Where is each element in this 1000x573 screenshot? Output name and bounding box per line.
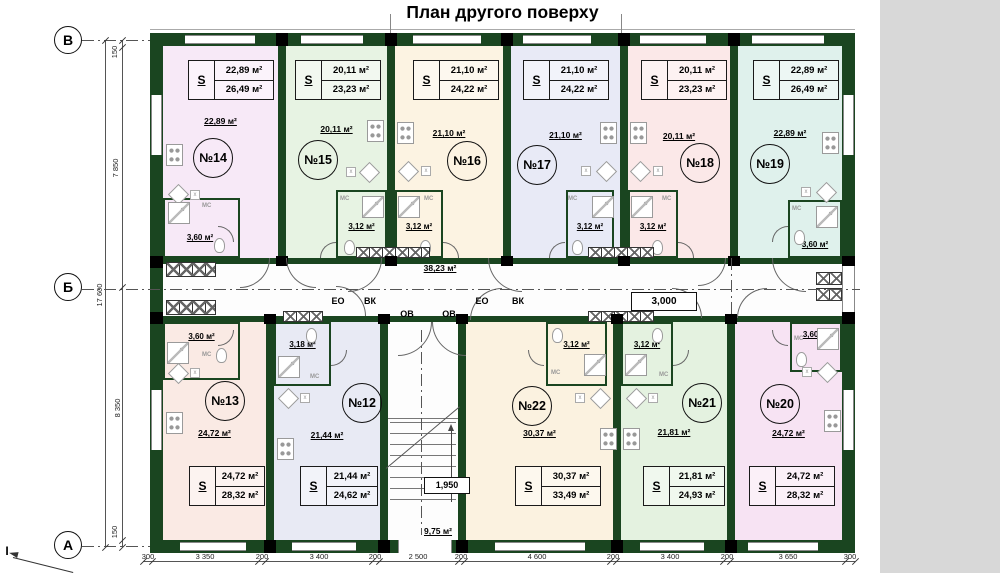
appliance-x-icon: х	[190, 368, 200, 378]
page-title: План другого поверху	[150, 2, 855, 23]
toilet-icon	[216, 348, 227, 363]
total-area-value: 24,22 м²	[550, 81, 608, 100]
stove-icon	[600, 122, 617, 144]
apartment-area-table: S24,72 м²28,32 м²	[749, 466, 835, 506]
stair-axis-line	[421, 330, 422, 535]
toilet-icon	[794, 230, 805, 245]
washing-machine-label: МС	[551, 370, 565, 377]
dim-line-left-inner	[122, 40, 123, 547]
apartment-area-table: S24,72 м²28,32 м²	[189, 466, 265, 506]
apartment-area-table: S20,11 м²23,23 м²	[295, 60, 381, 100]
column-block	[378, 314, 390, 324]
window	[151, 390, 162, 450]
table-values: 21,10 м²24,22 м²	[440, 61, 498, 99]
dim-label-bottom: 200	[597, 552, 629, 561]
stove-icon	[630, 122, 647, 144]
column-block	[385, 256, 397, 266]
dim-label-bottom: 300	[132, 552, 164, 561]
living-area-value: 22,89 м²	[215, 61, 273, 81]
dim-label-left: 7 850	[111, 148, 123, 188]
window	[640, 35, 706, 44]
window	[748, 542, 818, 551]
window	[495, 542, 585, 551]
table-values: 20,11 м²23,23 м²	[322, 61, 380, 99]
apartment-area-table: S22,89 м²26,49 м²	[753, 60, 839, 100]
washing-machine-label: МС	[792, 206, 806, 213]
stove-icon	[166, 412, 183, 434]
window	[180, 542, 246, 551]
total-area-value: 33,49 м²	[542, 487, 600, 506]
shower-icon	[168, 202, 190, 224]
axis-bubble: А	[54, 531, 82, 559]
vent-shaft-icon	[283, 311, 323, 322]
window	[752, 35, 824, 44]
window	[523, 35, 591, 44]
apartment-number-bubble: №15	[298, 140, 338, 180]
apartment-area-table: S21,10 м²24,22 м²	[413, 60, 499, 100]
total-area-value: 23,23 м²	[322, 81, 380, 100]
dim-label-bottom: 200	[445, 552, 477, 561]
table-s-label: S	[750, 467, 776, 505]
table-values: 24,72 м²28,32 м²	[776, 467, 834, 505]
table-s-label: S	[190, 467, 216, 505]
toilet-icon	[796, 352, 807, 367]
table-s-label: S	[301, 467, 327, 505]
toilet-icon	[306, 328, 317, 343]
column-block	[385, 33, 397, 46]
stair-arrow-head	[448, 424, 454, 431]
dim-line-bottom	[143, 561, 855, 562]
dim-label-bottom: 3 650	[772, 552, 804, 561]
column-block	[264, 314, 276, 324]
corridor-area-label: 38,23 м²	[408, 263, 472, 273]
table-s-label: S	[296, 61, 322, 99]
appliance-x-icon: х	[802, 367, 812, 377]
living-area-value: 21,81 м²	[670, 467, 724, 487]
dim-label-bottom: 2 500	[402, 552, 434, 561]
window	[640, 542, 704, 551]
bathroom-area-label: 3,12 м²	[336, 222, 387, 231]
appliance-x-icon: х	[190, 190, 200, 200]
axis-line-b	[82, 289, 860, 290]
stove-icon	[623, 428, 640, 450]
living-area-value: 21,10 м²	[440, 61, 498, 81]
total-area-value: 28,32 м²	[776, 487, 834, 506]
living-area-value: 21,10 м²	[550, 61, 608, 81]
dim-label-bottom: 3 400	[654, 552, 686, 561]
table-values: 21,44 м²24,62 м²	[327, 467, 377, 505]
dim-label-bottom: 200	[711, 552, 743, 561]
washing-machine-label: МС	[424, 196, 438, 203]
apartment-area-table: S22,89 м²26,49 м²	[188, 60, 274, 100]
stove-icon	[822, 132, 839, 154]
apartment-number-bubble: №12	[342, 383, 382, 423]
dim-label-left: 8 350	[113, 388, 125, 428]
table-values: 21,10 м²24,22 м²	[550, 61, 608, 99]
total-area-value: 24,93 м²	[670, 487, 724, 506]
shower-icon	[631, 196, 653, 218]
washing-machine-label: МС	[202, 203, 216, 210]
appliance-x-icon: х	[581, 166, 591, 176]
dim-label-bottom: 200	[359, 552, 391, 561]
stove-icon	[166, 144, 183, 166]
washing-machine-label: МС	[662, 196, 676, 203]
room-area-label: 30,37 м²	[466, 428, 613, 438]
column-block	[611, 314, 623, 324]
shower-icon	[398, 196, 420, 218]
stove-icon	[824, 410, 841, 432]
table-s-label: S	[754, 61, 780, 99]
window	[185, 35, 255, 44]
table-values: 22,89 м²26,49 м²	[215, 61, 273, 99]
dim-label-bottom: 3 400	[303, 552, 335, 561]
vent-shaft-icon	[816, 272, 842, 285]
apartment-area-table: S21,81 м²24,93 м²	[643, 466, 725, 506]
riser-label: ЕО	[471, 296, 493, 306]
table-values: 20,11 м²23,23 м²	[668, 61, 726, 99]
toilet-icon	[652, 328, 663, 343]
table-s-label: S	[524, 61, 550, 99]
stove-icon	[277, 438, 294, 460]
apartment-area-table: S20,11 м²23,23 м²	[641, 60, 727, 100]
column-block	[150, 256, 163, 268]
column-block	[618, 33, 630, 46]
apartment-area-table: S30,37 м²33,49 м²	[515, 466, 601, 506]
riser-label: ОВ	[396, 309, 418, 319]
dim-label-left: 150	[110, 512, 122, 552]
window	[843, 95, 854, 155]
bathroom-area-label: 3,12 м²	[566, 222, 614, 231]
washing-machine-label: МС	[202, 352, 216, 359]
toilet-icon	[344, 240, 355, 255]
living-area-value: 20,11 м²	[322, 61, 380, 81]
table-values: 21,81 м²24,93 м²	[670, 467, 724, 505]
shower-icon	[817, 328, 839, 350]
bathroom-area-label: 3,12 м²	[395, 222, 443, 231]
living-area-value: 21,44 м²	[327, 467, 377, 487]
riser-label: ВК	[507, 296, 529, 306]
apartment-number-bubble: №17	[517, 145, 557, 185]
column-block	[276, 33, 288, 46]
total-area-value: 26,49 м²	[215, 81, 273, 100]
corridor-width-dim: 3,000	[631, 292, 697, 311]
table-values: 24,72 м²28,32 м²	[216, 467, 264, 505]
shower-icon	[816, 206, 838, 228]
column-block	[618, 256, 630, 266]
apartment-number-bubble: №16	[447, 141, 487, 181]
bathroom-area-label: 3,18 м²	[274, 340, 331, 349]
table-values: 22,89 м²26,49 м²	[780, 61, 838, 99]
column-block	[728, 33, 740, 46]
grid-tick	[621, 14, 622, 33]
window	[151, 95, 162, 155]
axis-bubble: В	[54, 26, 82, 54]
column-block	[501, 33, 513, 46]
column-block	[728, 256, 740, 266]
viewer-background-band	[880, 0, 1000, 573]
vent-shaft-icon	[166, 300, 216, 315]
dim-label-bottom: 300	[834, 552, 866, 561]
room-area-label: 22,89 м²	[163, 116, 278, 126]
apartment-number-bubble: №22	[512, 386, 552, 426]
grid-tick	[390, 14, 391, 33]
floor-plan-drawing: План другого поверху S22,89 м²26,49 м²22…	[0, 0, 1000, 573]
stair-area-label: 9,75 м²	[404, 526, 472, 536]
table-s-label: S	[642, 61, 668, 99]
apartment-number-bubble: №19	[750, 144, 790, 184]
column-block	[842, 312, 855, 324]
apartment-area-table: S21,44 м²24,62 м²	[300, 466, 378, 506]
shower-icon	[625, 354, 647, 376]
window	[843, 390, 854, 450]
shower-icon	[167, 342, 189, 364]
section-mark-line	[13, 557, 73, 573]
column-block	[150, 312, 163, 324]
apartment-number-bubble: №14	[193, 138, 233, 178]
living-area-value: 24,72 м²	[216, 467, 264, 487]
living-area-value: 30,37 м²	[542, 467, 600, 487]
appliance-x-icon: х	[575, 393, 585, 403]
total-area-value: 28,32 м²	[216, 487, 264, 506]
dim-label-left: 17 600	[95, 275, 107, 315]
washing-machine-label: МС	[340, 196, 354, 203]
exterior-face-line	[150, 29, 855, 30]
washing-machine-label: МС	[794, 336, 808, 343]
toilet-icon	[552, 328, 563, 343]
apartment-number-bubble: №21	[682, 383, 722, 423]
toilet-icon	[572, 240, 583, 255]
window	[301, 35, 363, 44]
washing-machine-label: МС	[568, 196, 582, 203]
dim-label-bottom: 200	[246, 552, 278, 561]
living-area-value: 22,89 м²	[780, 61, 838, 81]
riser-label: ВК	[359, 296, 381, 306]
appliance-x-icon: х	[300, 393, 310, 403]
riser-label: ОВ	[438, 309, 460, 319]
axis-bubble: Б	[54, 273, 82, 301]
apartment-number-bubble: №18	[680, 143, 720, 183]
total-area-value: 24,62 м²	[327, 487, 377, 506]
window	[292, 542, 356, 551]
dim-label-bottom: 4 600	[521, 552, 553, 561]
appliance-x-icon: х	[801, 187, 811, 197]
appliance-x-icon: х	[648, 393, 658, 403]
living-area-value: 20,11 м²	[668, 61, 726, 81]
stair-width-dim: 1,950	[424, 477, 470, 494]
washing-machine-label: МС	[310, 374, 324, 381]
stove-icon	[397, 122, 414, 144]
stair-landing-line	[388, 418, 458, 419]
dim-label-left: 150	[110, 32, 122, 72]
bathroom-area-label: 3,12 м²	[628, 222, 678, 231]
window	[413, 35, 481, 44]
bathroom-area-label: 3,12 м²	[621, 340, 673, 349]
shower-icon	[592, 196, 614, 218]
dim-label-bottom: 3 350	[189, 552, 221, 561]
apartment-number-bubble: №20	[760, 384, 800, 424]
apartment-number-bubble: №13	[205, 381, 245, 421]
appliance-x-icon: х	[346, 167, 356, 177]
riser-label: ЕО	[327, 296, 349, 306]
shower-icon	[362, 196, 384, 218]
total-area-value: 26,49 м²	[780, 81, 838, 100]
table-s-label: S	[644, 467, 670, 505]
washing-machine-label: МС	[659, 372, 673, 379]
shower-icon	[278, 356, 300, 378]
appliance-x-icon: х	[421, 166, 431, 176]
apartment-area-table: S21,10 м²24,22 м²	[523, 60, 609, 100]
total-area-value: 24,22 м²	[440, 81, 498, 100]
appliance-x-icon: х	[653, 166, 663, 176]
table-s-label: S	[414, 61, 440, 99]
shower-icon	[584, 354, 606, 376]
vent-shaft-icon	[166, 262, 216, 277]
table-s-label: S	[516, 467, 542, 505]
living-area-value: 24,72 м²	[776, 467, 834, 487]
stove-icon	[367, 120, 384, 142]
stove-icon	[600, 428, 617, 450]
vestibule-axis-line	[731, 258, 732, 316]
table-s-label: S	[189, 61, 215, 99]
total-area-value: 23,23 м²	[668, 81, 726, 100]
table-values: 30,37 м²33,49 м²	[542, 467, 600, 505]
